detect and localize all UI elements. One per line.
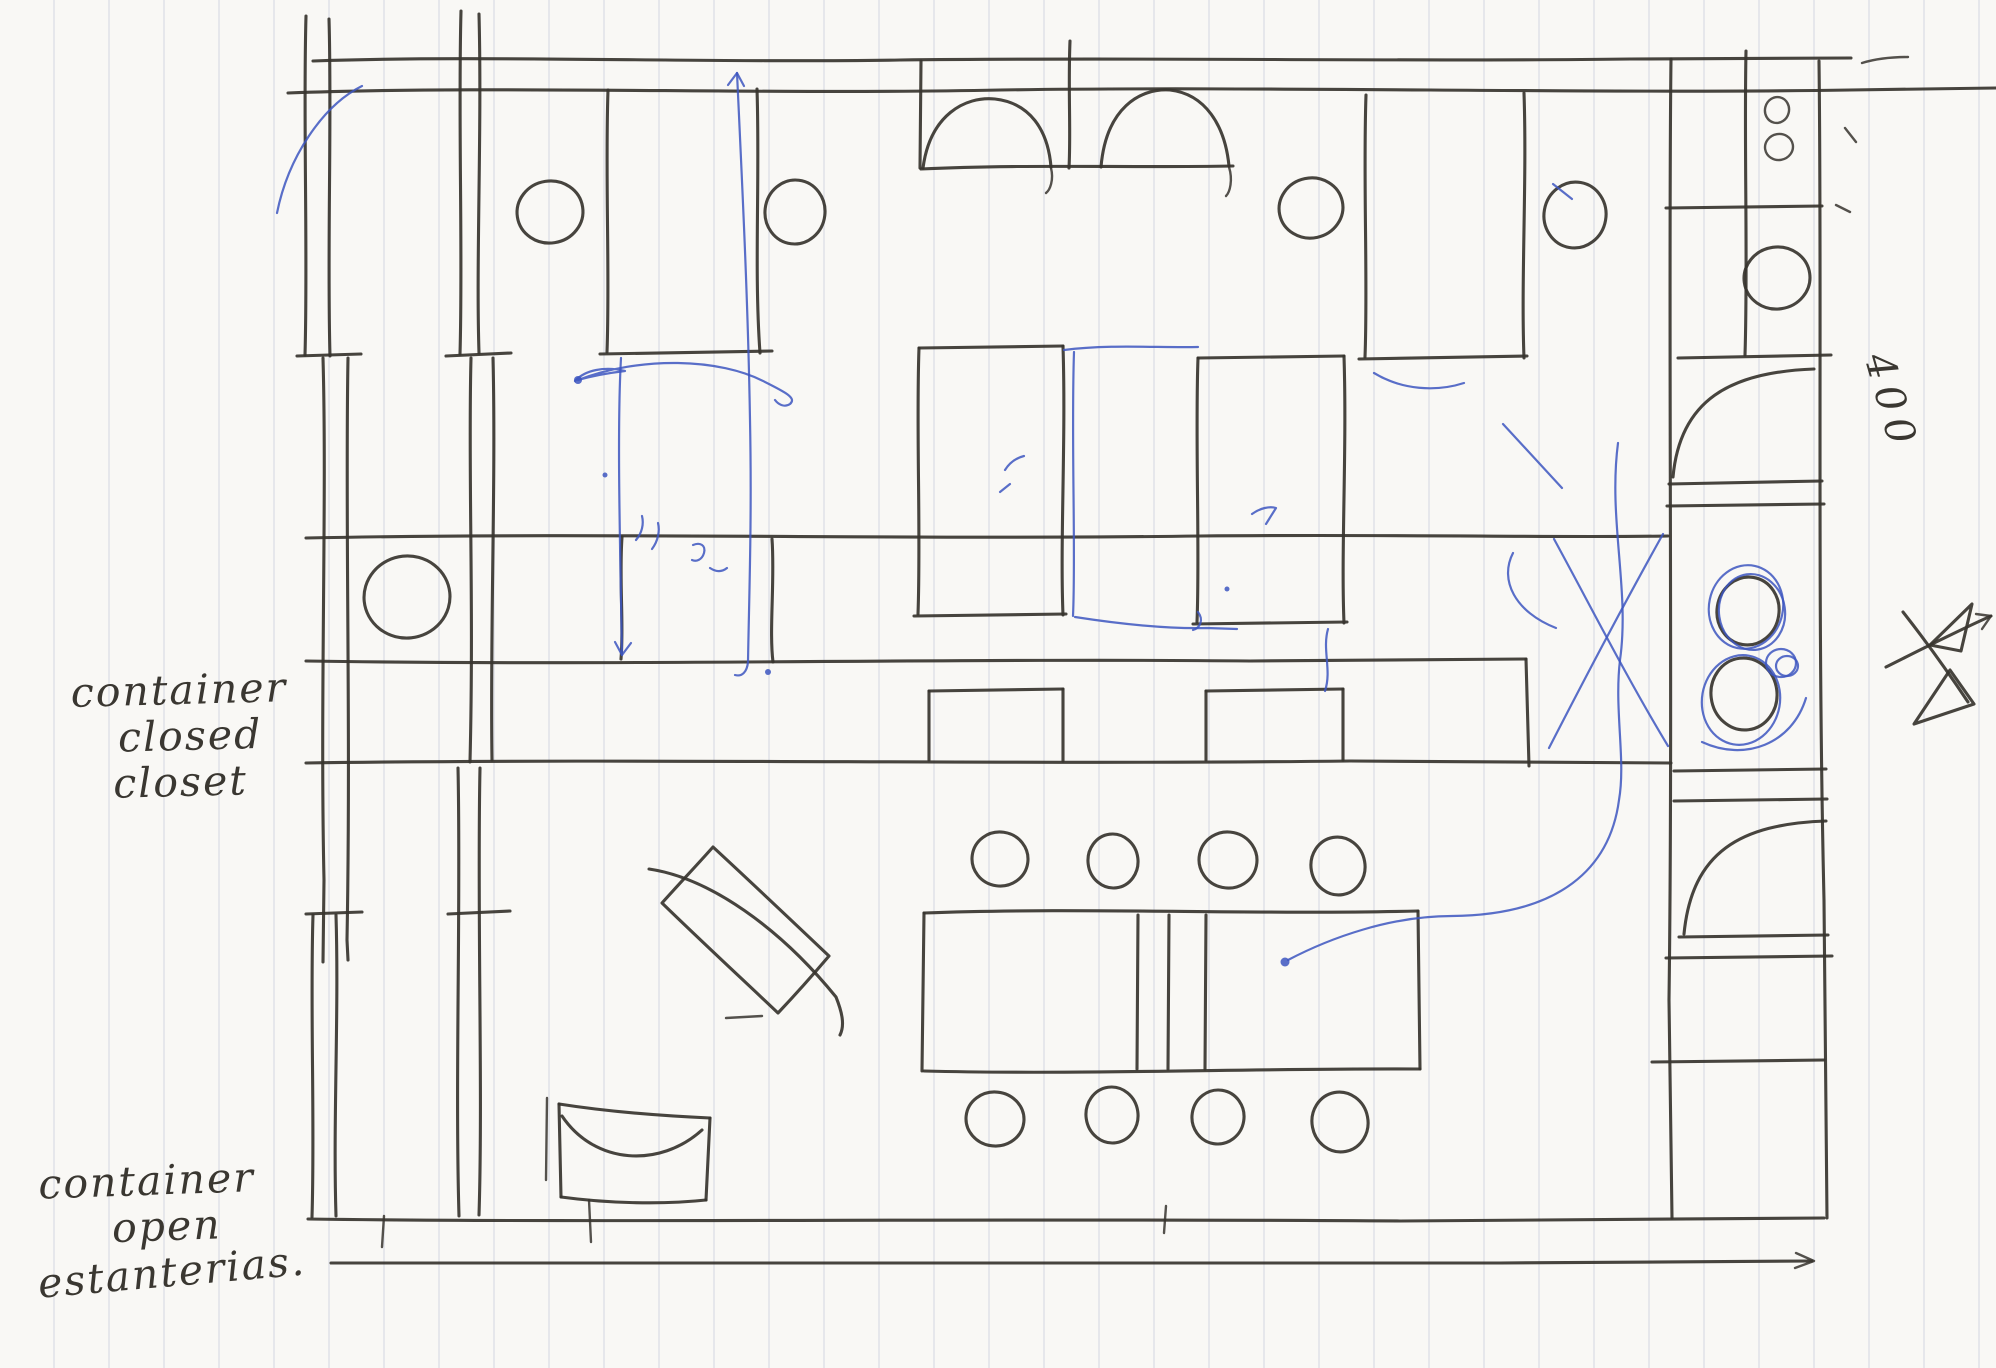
chair-circle xyxy=(513,176,588,248)
fixture-circle xyxy=(1762,94,1792,125)
entry-door-arcs xyxy=(920,41,1233,196)
middle-rooms xyxy=(621,346,1347,662)
scanned-floorplan-sketch-page: container closed closet container open e… xyxy=(0,0,1996,1368)
chair-circle xyxy=(1194,827,1262,894)
outer-walls xyxy=(288,11,1996,1268)
fixture-circle xyxy=(1740,243,1814,314)
chair-circle xyxy=(1307,1087,1373,1157)
label-line: container xyxy=(38,1153,256,1209)
label-line: closed xyxy=(117,711,289,761)
blue-toilet-trace xyxy=(1695,649,1787,751)
chair-circles xyxy=(360,172,1611,1157)
blue-toilet-trace xyxy=(1701,558,1791,656)
chair-circle xyxy=(969,828,1032,889)
chair-circle xyxy=(1085,831,1141,891)
tick-mark xyxy=(1836,205,1850,212)
rotated-desk xyxy=(649,847,843,1035)
open-container-label: container open estanterias. xyxy=(38,1153,307,1300)
tick-mark xyxy=(1845,128,1856,142)
chair-circle xyxy=(360,552,454,643)
fixture-circle xyxy=(1763,132,1795,162)
blue-wall-trace xyxy=(1064,347,1198,350)
door-swing-arc xyxy=(1101,90,1229,167)
chair-circle xyxy=(963,1089,1026,1149)
blue-x-scribble xyxy=(1549,534,1663,748)
corridor-lines xyxy=(306,535,1671,766)
blue-x-scribble xyxy=(1554,539,1668,746)
label-line: container xyxy=(70,663,288,717)
chair-circle xyxy=(1188,1086,1248,1147)
door-swing-arc xyxy=(1684,821,1826,934)
blue-pen-scribbles xyxy=(277,73,1806,967)
chair-circle xyxy=(761,177,828,248)
chair-circle xyxy=(1539,177,1612,253)
blue-small-circle xyxy=(1766,649,1796,677)
blue-vertical-stroke xyxy=(619,358,622,655)
crossed-out-symbol xyxy=(1886,604,1991,724)
bathroom-fixtures xyxy=(1707,94,1814,733)
chair-circle xyxy=(1082,1084,1141,1147)
tick-mark xyxy=(1862,57,1908,63)
chair-circle xyxy=(1273,172,1348,244)
label-line: closet xyxy=(113,757,291,808)
bathroom-strip xyxy=(1652,51,1832,1218)
closet-band-containers xyxy=(929,689,1343,761)
closed-container-label: container closed closet xyxy=(70,665,290,808)
blue-horizontal-stroke xyxy=(575,363,792,406)
door-swing-arc xyxy=(1673,369,1814,477)
blue-arc-top-left xyxy=(277,86,362,213)
door-swing-arc xyxy=(923,99,1051,168)
chair-circle xyxy=(1306,833,1369,899)
